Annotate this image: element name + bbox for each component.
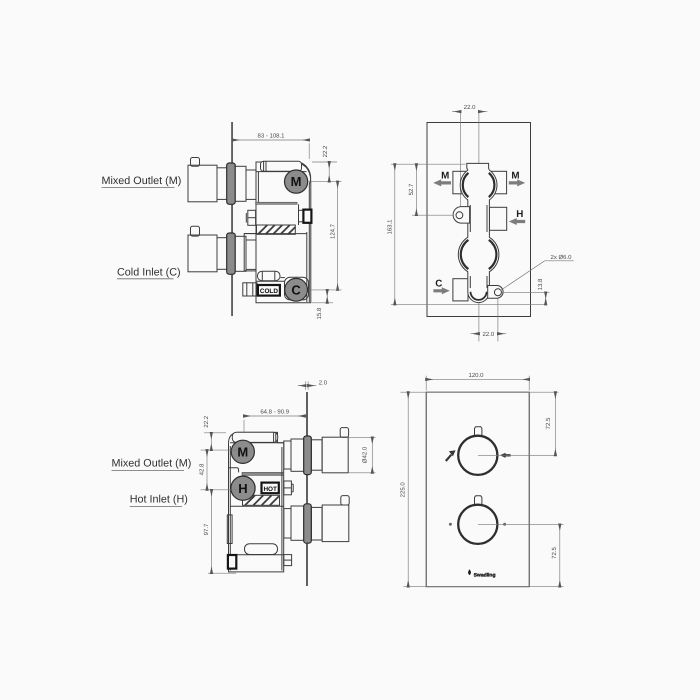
svg-text:Mixed Outlet (M): Mixed Outlet (M) [112,458,192,470]
svg-text:2.0: 2.0 [319,379,328,386]
svg-text:Ø42.0: Ø42.0 [362,446,369,463]
svg-text:M: M [441,170,449,181]
svg-text:52.7: 52.7 [408,183,415,195]
svg-text:97.7: 97.7 [203,523,210,535]
svg-text:72.5: 72.5 [551,547,558,559]
svg-text:H: H [238,481,247,496]
svg-text:163.1: 163.1 [386,219,393,235]
svg-text:M: M [511,170,519,181]
svg-text:H: H [516,209,523,220]
svg-text:C: C [291,283,301,298]
svg-text:22.2: 22.2 [203,415,210,427]
svg-text:Mixed Outlet (M): Mixed Outlet (M) [102,175,182,187]
svg-text:HOT: HOT [263,486,277,493]
svg-text:72.5: 72.5 [545,417,552,429]
svg-text:124.7: 124.7 [329,223,336,239]
svg-text:42.8: 42.8 [199,463,206,475]
svg-text:Hot Inlet (H): Hot Inlet (H) [130,494,188,506]
svg-text:22.2: 22.2 [322,145,329,157]
svg-text:C: C [435,278,442,289]
svg-text:22.0: 22.0 [464,104,476,111]
svg-text:83 - 108.1: 83 - 108.1 [257,133,285,140]
svg-text:15.8: 15.8 [316,307,323,319]
svg-text:120.0: 120.0 [468,372,484,379]
svg-text:2x Ø6.0: 2x Ø6.0 [551,254,573,261]
svg-text:M: M [291,174,302,189]
svg-text:13.8: 13.8 [537,278,544,290]
svg-text:225.0: 225.0 [399,482,406,498]
svg-text:Swadling: Swadling [474,572,496,578]
svg-text:Cold Inlet (C): Cold Inlet (C) [117,267,181,279]
svg-text:COLD: COLD [260,288,278,295]
svg-text:64.8 - 90.9: 64.8 - 90.9 [260,409,289,416]
svg-text:22.0: 22.0 [483,331,495,338]
svg-text:M: M [237,444,248,459]
